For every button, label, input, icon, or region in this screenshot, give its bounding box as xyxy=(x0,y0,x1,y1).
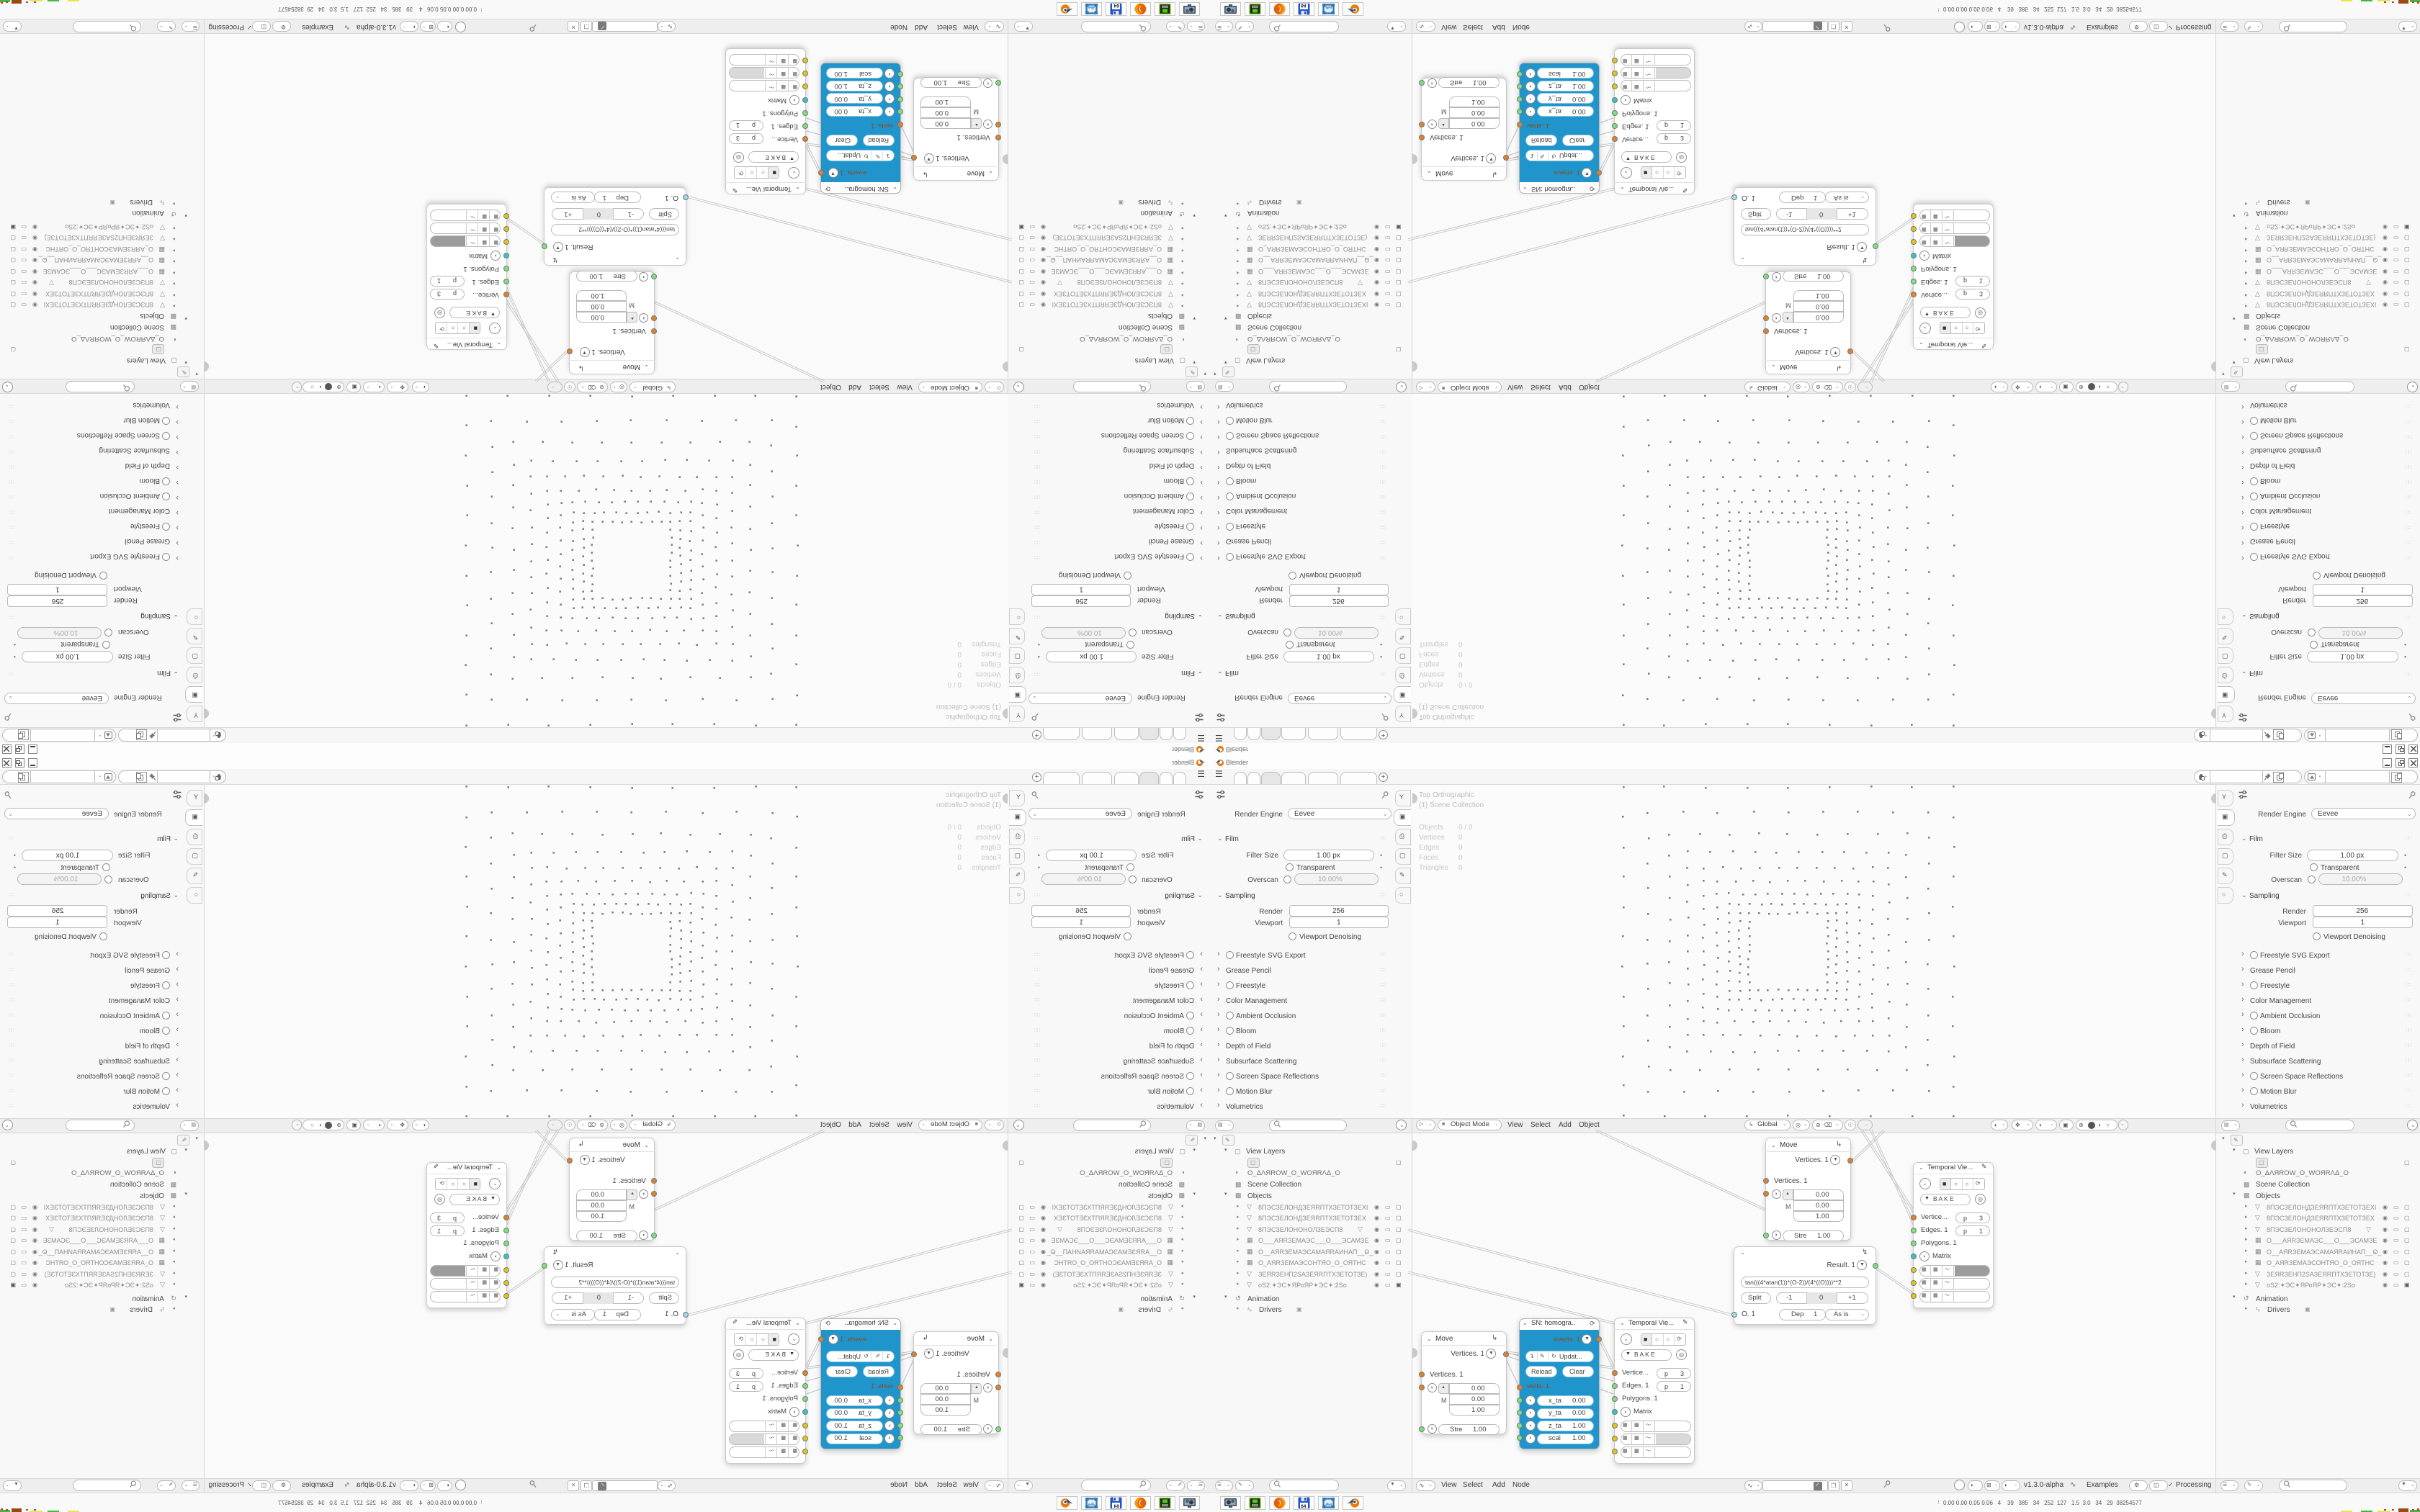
svg-text:64: 64 xyxy=(1301,3,1307,8)
svg-text:64: 64 xyxy=(1301,1504,1307,1509)
svg-text:64: 64 xyxy=(1113,1504,1119,1509)
svg-text:64: 64 xyxy=(1113,3,1119,8)
